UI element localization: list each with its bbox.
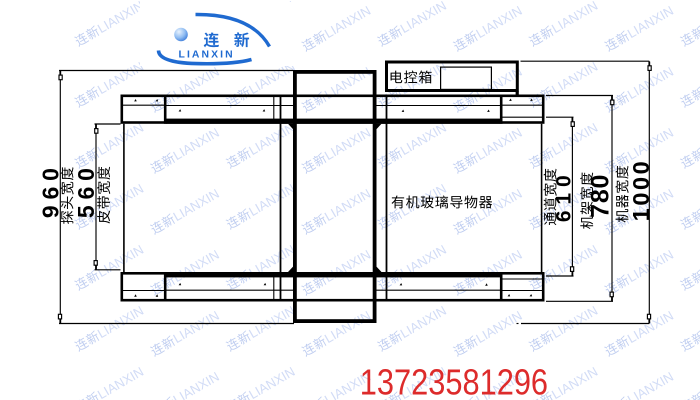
svg-text:1000: 1000 bbox=[628, 159, 654, 222]
svg-text:960: 960 bbox=[37, 162, 63, 218]
svg-text:780: 780 bbox=[587, 174, 615, 218]
svg-text:LIANXIN: LIANXIN bbox=[179, 50, 235, 61]
svg-text:610: 610 bbox=[553, 169, 576, 222]
svg-text:560: 560 bbox=[73, 162, 99, 218]
svg-text:13723581296: 13723581296 bbox=[360, 363, 548, 400]
